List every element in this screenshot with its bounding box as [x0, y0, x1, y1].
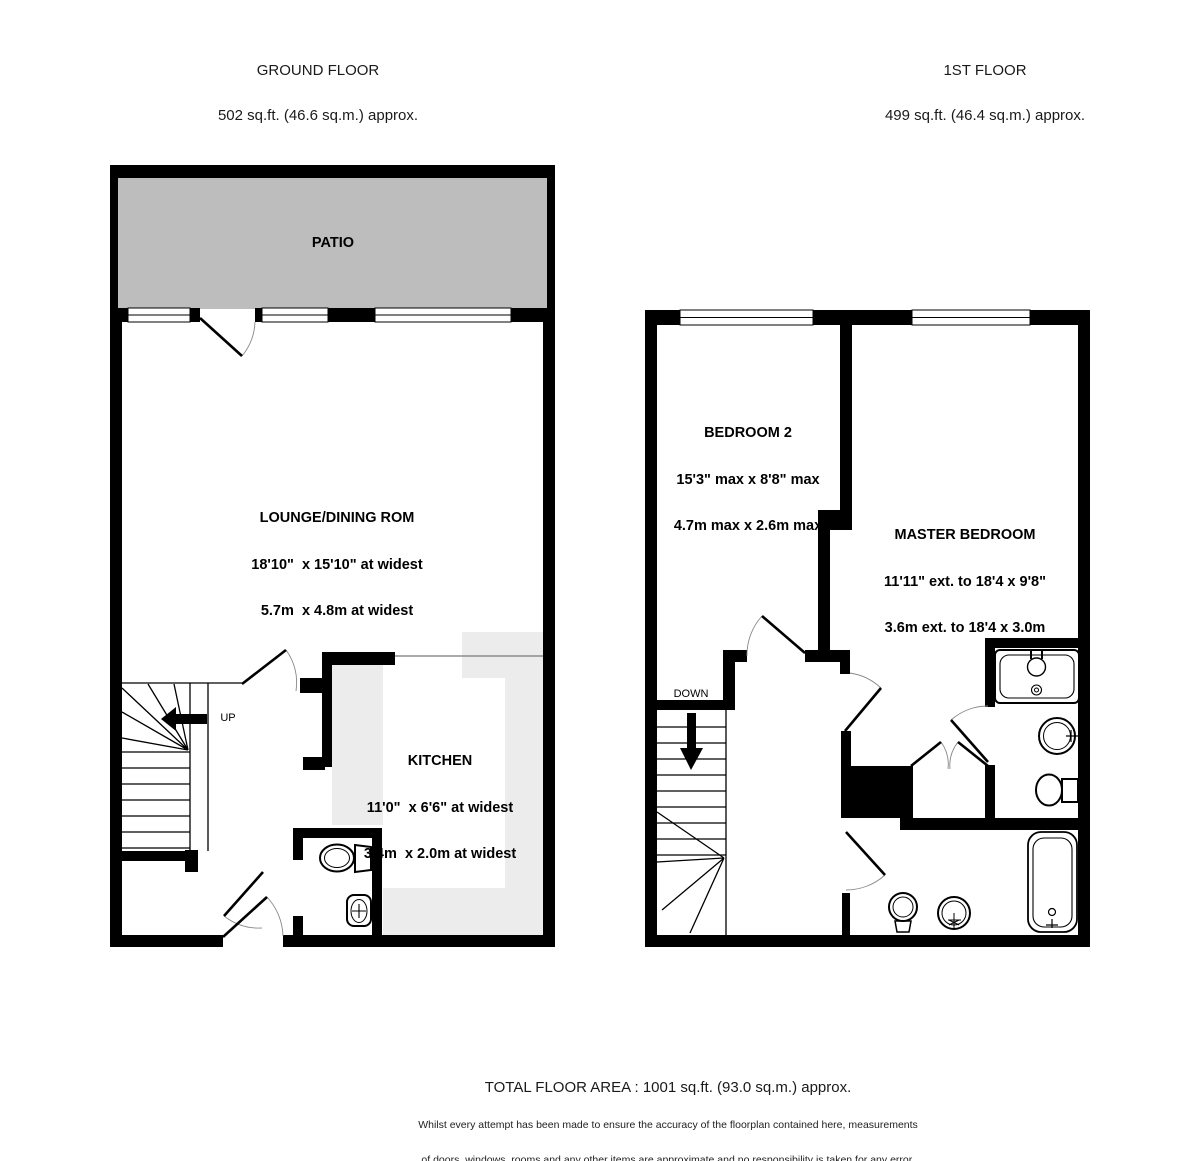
first-floor-area: 499 sq.ft. (46.4 sq.m.) approx.	[885, 108, 1085, 123]
ground-floor-area: 502 sq.ft. (46.6 sq.m.) approx.	[218, 108, 418, 123]
first-floor-title: 1ST FLOOR	[885, 63, 1085, 78]
window	[128, 308, 190, 322]
ensuite-toilet	[1036, 775, 1078, 806]
disclaimer: Whilst every attempt has been made to en…	[415, 1097, 920, 1161]
bedroom2-dims-metric: 4.7m max x 2.6m max	[674, 519, 822, 535]
kitchen-label: KITCHEN 11'0" x 6'6" at widest 3.4m x 2.…	[364, 723, 516, 894]
bedroom2-name: BEDROOM 2	[674, 426, 822, 442]
window	[912, 310, 1030, 325]
kitchen-dims-imperial: 11'0" x 6'6" at widest	[364, 801, 516, 817]
stairs-down-label: DOWN	[674, 687, 709, 703]
first-floor-header: 1ST FLOOR 499 sq.ft. (46.4 sq.m.) approx…	[885, 33, 1085, 153]
master-dims-metric: 3.6m ext. to 18'4 x 3.0m	[884, 621, 1046, 637]
master-name: MASTER BEDROOM	[884, 528, 1046, 544]
ground-floor-title: GROUND FLOOR	[218, 63, 418, 78]
lounge-name: LOUNGE/DINING ROM	[251, 511, 422, 527]
bathtub	[1028, 832, 1077, 932]
up-arrow-icon	[161, 707, 207, 731]
round-basin	[1039, 718, 1078, 754]
disclaimer-line: of doors, windows, rooms and any other i…	[415, 1155, 920, 1161]
stairs-up	[122, 683, 242, 851]
bedroom2-dims-imperial: 15'3" max x 8'8" max	[674, 473, 822, 489]
down-arrow-icon	[680, 713, 703, 770]
bedroom2-label: BEDROOM 2 15'3" max x 8'8" max 4.7m max …	[674, 395, 822, 566]
lounge-dims-imperial: 18'10" x 15'10" at widest	[251, 558, 422, 574]
total-floor-area: TOTAL FLOOR AREA : 1001 sq.ft. (93.0 sq.…	[485, 1080, 852, 1096]
kitchen-dims-metric: 3.4m x 2.0m at widest	[364, 847, 516, 863]
floorplan-page: GROUND FLOOR 502 sq.ft. (46.6 sq.m.) app…	[0, 0, 1200, 1161]
bathroom-sink	[938, 897, 970, 929]
patio-label: PATIO	[312, 236, 354, 252]
kitchen-name: KITCHEN	[364, 754, 516, 770]
stairs-up-label: UP	[220, 711, 235, 727]
ground-floor-header: GROUND FLOOR 502 sq.ft. (46.6 sq.m.) app…	[218, 33, 418, 153]
window	[262, 308, 328, 322]
bathroom-toilet	[889, 893, 917, 932]
ground-windows	[128, 308, 511, 322]
wc-sink	[347, 895, 371, 926]
master-dims-imperial: 11'11" ext. to 18'4 x 9'8"	[884, 575, 1046, 591]
master-bedroom-label: MASTER BEDROOM 11'11" ext. to 18'4 x 9'8…	[884, 497, 1046, 668]
lounge-label: LOUNGE/DINING ROM 18'10" x 15'10" at wid…	[251, 480, 422, 651]
stairs-down	[657, 710, 726, 935]
disclaimer-line: Whilst every attempt has been made to en…	[415, 1120, 920, 1132]
lounge-dims-metric: 5.7m x 4.8m at widest	[251, 604, 422, 620]
window	[375, 308, 511, 322]
window	[680, 310, 813, 325]
